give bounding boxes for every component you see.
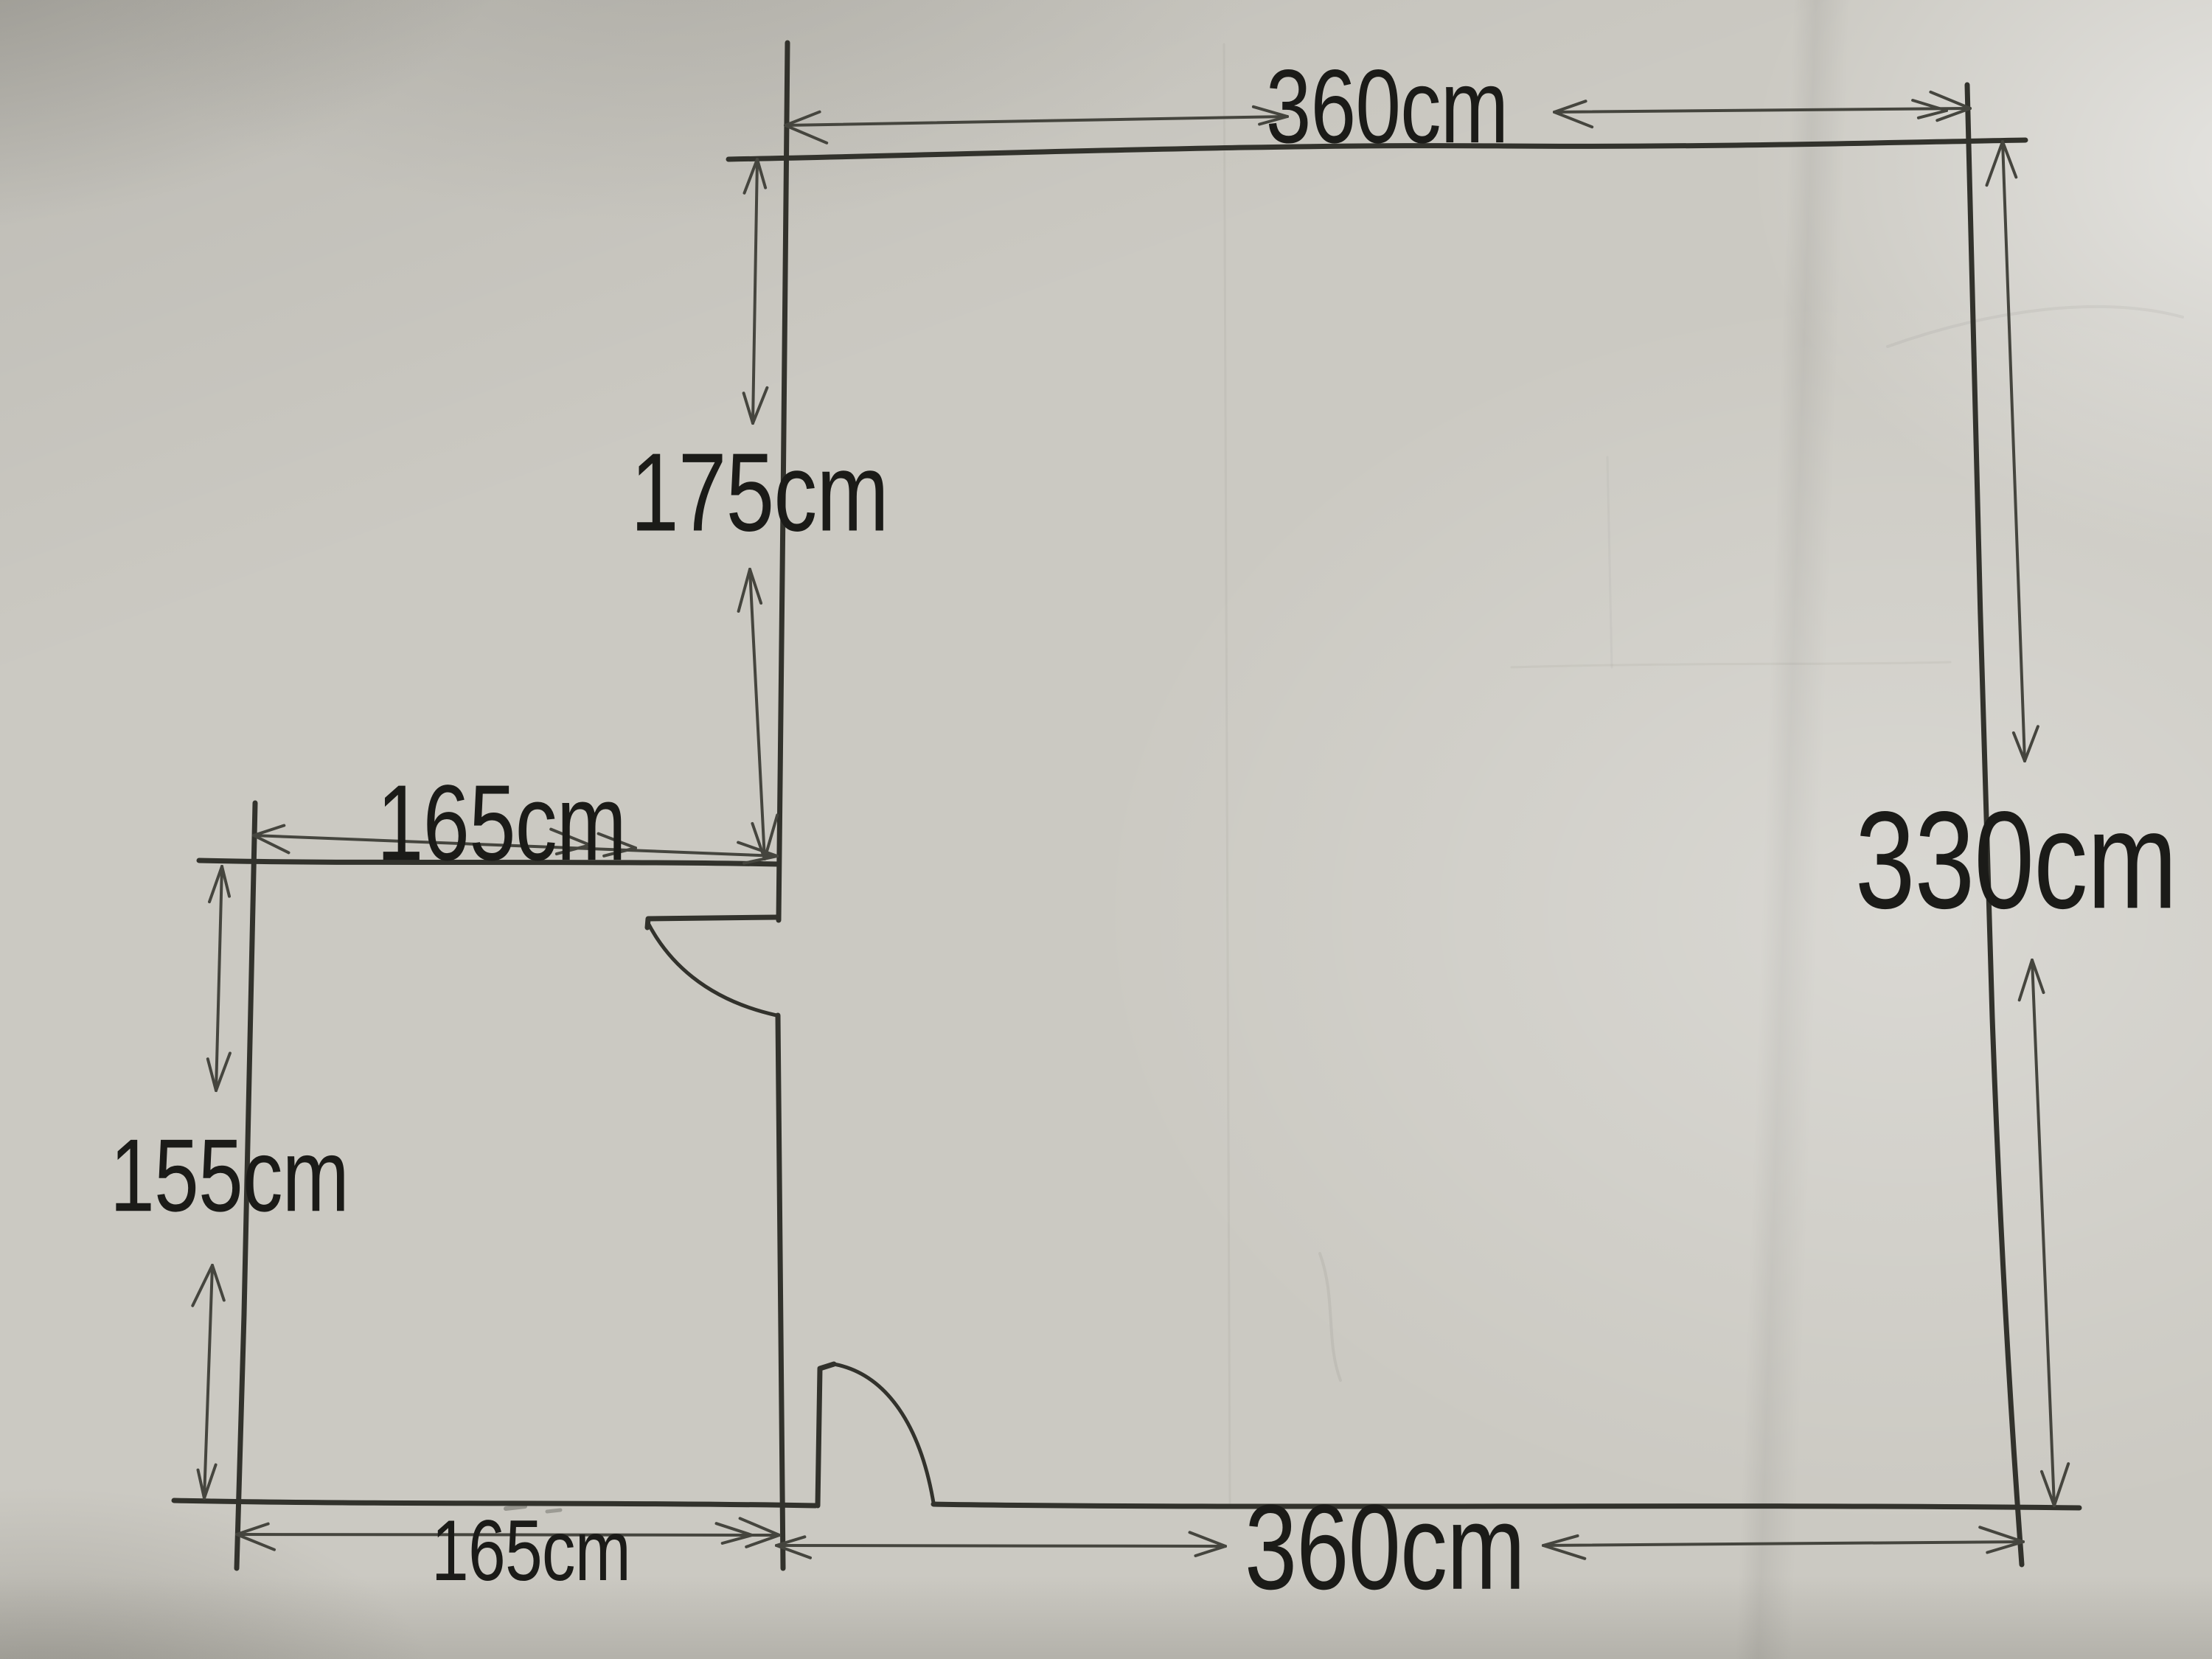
dimension-stroke bbox=[212, 1265, 224, 1301]
paper-sheet: 360cm 175cm 165cm 330cm 155cm 165cm 360c… bbox=[0, 0, 2212, 1659]
dimension-stroke bbox=[750, 569, 765, 859]
dimension-stroke bbox=[1543, 1545, 1585, 1559]
dimension-stroke bbox=[2032, 960, 2054, 1506]
bottom-door-arc bbox=[834, 1364, 933, 1503]
upper-door-leaf bbox=[647, 917, 776, 928]
dimension-stroke bbox=[744, 393, 753, 423]
pencil-mark bbox=[1512, 662, 1950, 667]
dimension-stroke bbox=[1190, 1532, 1226, 1546]
dimension-stroke bbox=[1987, 142, 2003, 185]
dimension-stroke bbox=[2054, 1464, 2068, 1506]
dimension-stroke bbox=[717, 1523, 753, 1535]
dimension-stroke bbox=[208, 1059, 216, 1091]
dimension-stroke bbox=[785, 112, 820, 125]
dimension-stroke bbox=[216, 866, 222, 1091]
dimension-stroke bbox=[254, 826, 284, 836]
dim-label-top-width: 360cm bbox=[1266, 55, 1509, 159]
dimension-stroke bbox=[1919, 111, 1947, 118]
dimension-stroke bbox=[753, 388, 767, 423]
dimension-stroke bbox=[776, 1545, 1225, 1546]
dim-label-right-height: 330cm bbox=[1855, 790, 2177, 929]
pencil-mark bbox=[1320, 1253, 1340, 1380]
dimension-stroke bbox=[237, 1524, 268, 1534]
dimension-stroke bbox=[2020, 960, 2032, 1000]
center-wall-lower bbox=[778, 1015, 783, 1568]
dimension-stroke bbox=[204, 1265, 212, 1498]
dimension-stroke bbox=[222, 866, 229, 897]
dimension-stroke bbox=[1554, 112, 1592, 127]
dimension-stroke bbox=[237, 1534, 274, 1550]
dimension-stroke bbox=[739, 569, 750, 611]
pencil-mark bbox=[1607, 457, 1612, 667]
pencil-mark bbox=[1888, 307, 2183, 347]
dim-label-closet-height: 155cm bbox=[110, 1124, 349, 1227]
dimension-stroke bbox=[785, 125, 827, 143]
dimension-stroke bbox=[1930, 92, 1970, 108]
dim-label-upper-left-height: 175cm bbox=[630, 436, 888, 547]
dimension-stroke bbox=[785, 116, 1287, 125]
pencil-mark bbox=[1224, 44, 1230, 1504]
dim-label-closet-width: 165cm bbox=[377, 769, 626, 877]
faint-pencil-marks bbox=[506, 44, 2183, 1512]
dimension-stroke bbox=[1554, 108, 1970, 112]
bottom-door-leaf bbox=[818, 1364, 834, 1506]
dimension-stroke bbox=[2025, 726, 2038, 761]
upper-door-arc bbox=[648, 923, 776, 1015]
dimension-stroke bbox=[1543, 1542, 2023, 1545]
dim-label-bottom-right-width: 360cm bbox=[1245, 1487, 1525, 1608]
dimension-stroke bbox=[192, 1265, 212, 1306]
dimension-stroke bbox=[746, 1535, 779, 1547]
dim-label-bottom-left-width: 165cm bbox=[431, 1507, 630, 1593]
dimension-stroke bbox=[753, 159, 757, 423]
dimension-stroke bbox=[2003, 142, 2025, 761]
